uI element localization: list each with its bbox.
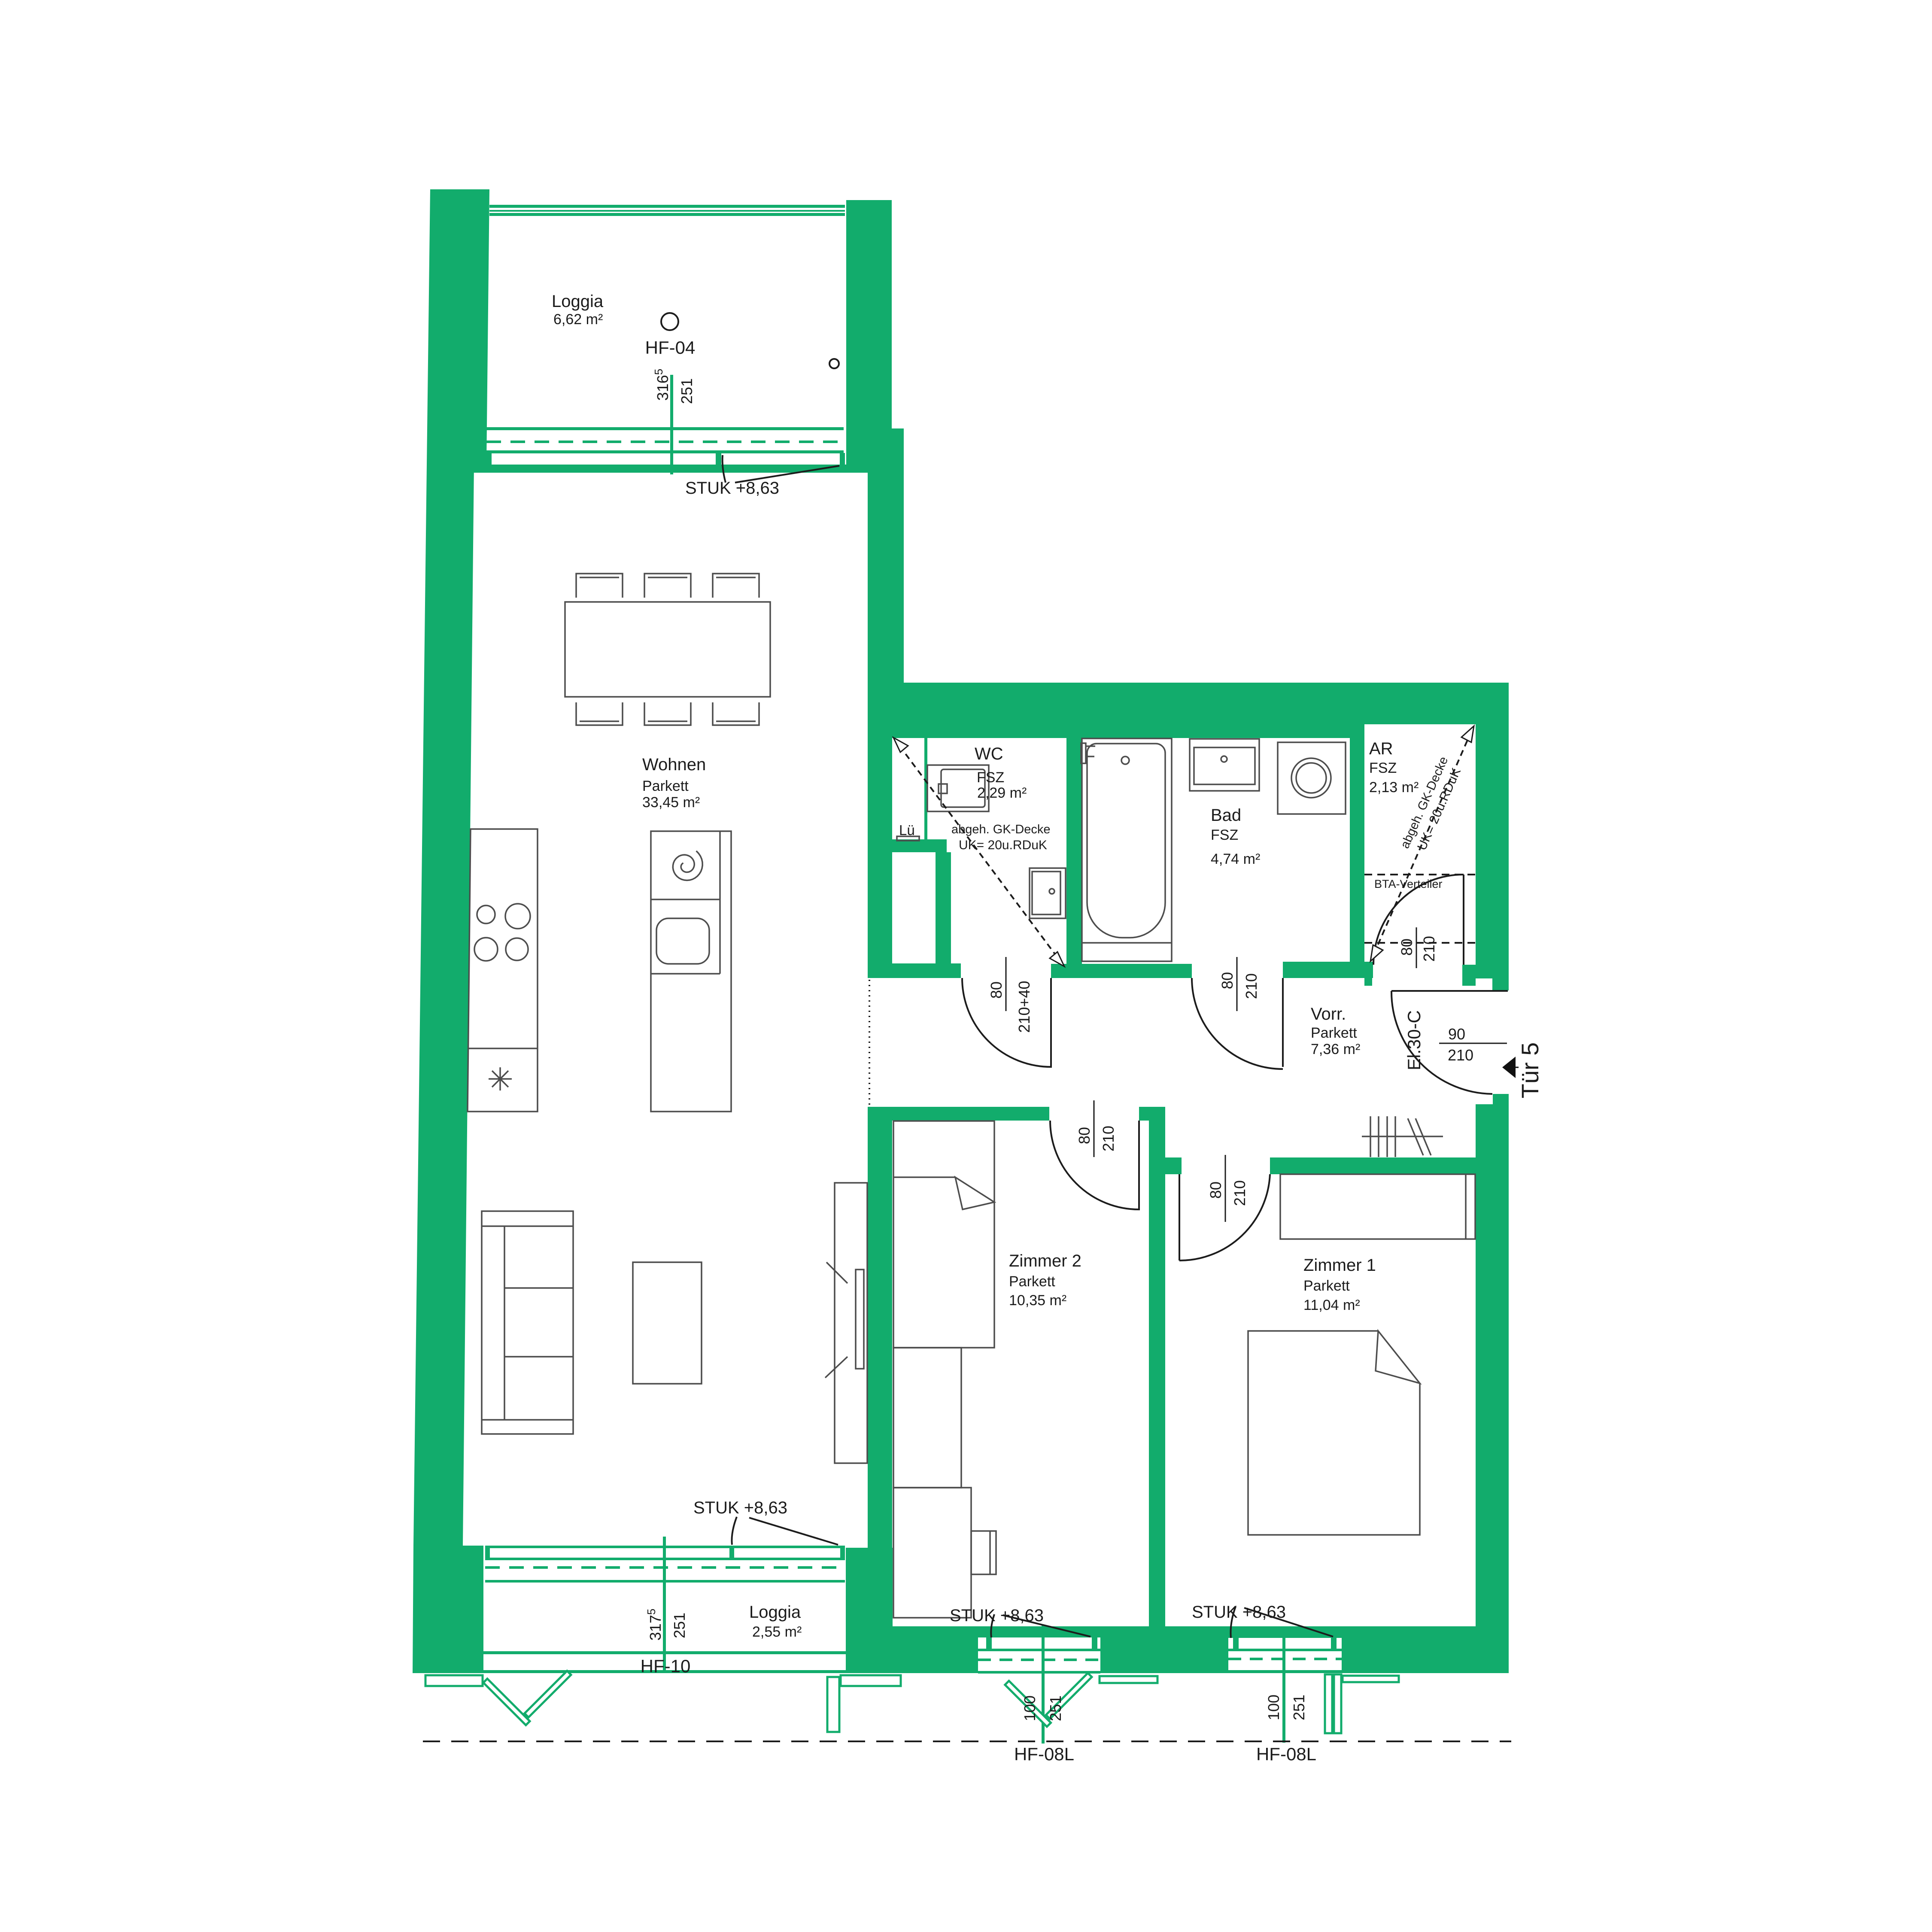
svg-text:Wohnen: Wohnen — [642, 755, 706, 774]
svg-text:210+40: 210+40 — [1015, 981, 1033, 1033]
svg-text:STUK +8,63: STUK +8,63 — [950, 1606, 1044, 1625]
svg-text:80: 80 — [987, 981, 1005, 999]
svg-text:251: 251 — [678, 378, 696, 404]
svg-text:WC: WC — [975, 744, 1003, 763]
svg-text:BTA-Verteiler: BTA-Verteiler — [1374, 878, 1443, 890]
svg-text:210: 210 — [1231, 1180, 1249, 1206]
svg-text:Parkett: Parkett — [1009, 1273, 1055, 1290]
svg-text:El.30-C: El.30-C — [1404, 1010, 1424, 1070]
svg-text:4,74 m²: 4,74 m² — [1211, 851, 1260, 867]
svg-text:FSZ: FSZ — [1369, 760, 1397, 776]
svg-text:HF-08L: HF-08L — [1256, 1744, 1316, 1764]
svg-text:2,29 m²: 2,29 m² — [977, 785, 1027, 801]
svg-text:2,13 m²: 2,13 m² — [1369, 779, 1419, 796]
svg-text:7,36 m²: 7,36 m² — [1311, 1041, 1360, 1057]
svg-text:HF-04: HF-04 — [645, 337, 696, 358]
svg-text:210: 210 — [1448, 1046, 1473, 1064]
svg-text:Zimmer 2: Zimmer 2 — [1009, 1252, 1081, 1270]
svg-text:210: 210 — [1420, 936, 1438, 962]
svg-text:80: 80 — [1075, 1127, 1093, 1144]
svg-text:11,04 m²: 11,04 m² — [1303, 1297, 1360, 1313]
svg-text:251: 251 — [1047, 1695, 1064, 1721]
svg-text:Lü: Lü — [899, 822, 915, 838]
svg-text:Parkett: Parkett — [642, 778, 689, 794]
svg-text:210: 210 — [1100, 1126, 1117, 1151]
svg-text:251: 251 — [671, 1613, 688, 1638]
svg-text:Parkett: Parkett — [1311, 1025, 1357, 1041]
svg-text:100: 100 — [1265, 1695, 1282, 1720]
svg-text:Loggia: Loggia — [749, 1603, 801, 1622]
svg-text:Zimmer 1: Zimmer 1 — [1303, 1256, 1376, 1275]
svg-text:80: 80 — [1218, 972, 1236, 989]
svg-text:Bad: Bad — [1211, 806, 1241, 825]
svg-text:abgeh. GK-Decke: abgeh. GK-Decke — [951, 823, 1051, 836]
svg-text:90: 90 — [1448, 1025, 1465, 1043]
svg-text:Loggia: Loggia — [552, 292, 604, 311]
svg-text:STUK +8,63: STUK +8,63 — [685, 479, 779, 498]
svg-text:STUK +8,63: STUK +8,63 — [1192, 1603, 1286, 1622]
svg-text:HF-08L: HF-08L — [1014, 1744, 1074, 1764]
svg-text:80: 80 — [1398, 939, 1416, 956]
svg-text:HF-10: HF-10 — [641, 1656, 691, 1676]
svg-text:FSZ: FSZ — [977, 769, 1004, 786]
svg-text:Parkett: Parkett — [1303, 1278, 1350, 1294]
svg-text:100: 100 — [1021, 1695, 1039, 1721]
svg-text:80: 80 — [1207, 1182, 1224, 1199]
svg-text:FSZ: FSZ — [1211, 827, 1238, 843]
svg-text:Tür 5: Tür 5 — [1516, 1042, 1543, 1099]
svg-text:STUK +8,63: STUK +8,63 — [693, 1498, 787, 1517]
svg-text:251: 251 — [1290, 1695, 1308, 1720]
svg-text:AR: AR — [1369, 739, 1393, 758]
svg-text:UK= 20u.RDuK: UK= 20u.RDuK — [959, 838, 1047, 852]
svg-text:2,55 m²: 2,55 m² — [752, 1624, 802, 1640]
svg-text:33,45 m²: 33,45 m² — [642, 794, 700, 811]
svg-text:210: 210 — [1242, 973, 1260, 999]
svg-text:Vorr.: Vorr. — [1311, 1005, 1346, 1024]
svg-text:10,35 m²: 10,35 m² — [1009, 1292, 1066, 1309]
svg-text:6,62 m²: 6,62 m² — [553, 311, 603, 328]
